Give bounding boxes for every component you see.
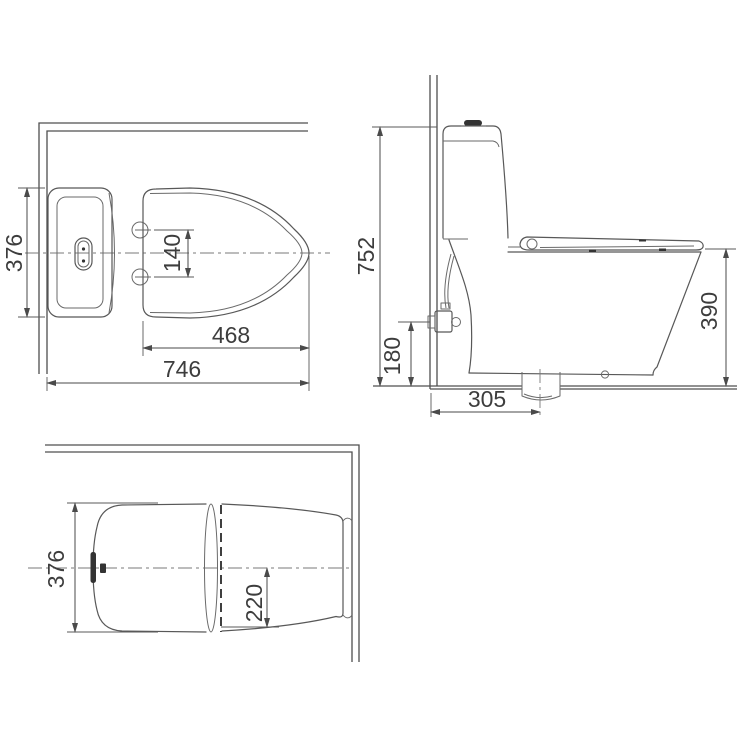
side-tank-lid-seam — [443, 141, 499, 147]
front-base-hook-top — [343, 518, 352, 521]
front-flush-button-nub — [100, 564, 106, 574]
side-body-front-curve — [449, 240, 472, 373]
dim-label-drain-setout: 305 — [468, 386, 506, 412]
drain-pipe-lip — [524, 394, 552, 398]
side-tank-outline — [443, 126, 508, 238]
lid-bumper-mark — [639, 240, 646, 242]
top-view: 376 140 468 746 — [1, 123, 330, 391]
dim-label-base-offset: 220 — [241, 584, 267, 622]
dim-label-seat-depth: 468 — [212, 322, 250, 348]
dim-label-bowl-height: 390 — [696, 292, 722, 330]
dim-label-hinge-spacing: 140 — [159, 234, 185, 272]
side-flush-button — [464, 120, 482, 126]
front-base-hook-bottom — [343, 615, 352, 618]
side-seat-hinge — [527, 239, 537, 249]
side-seat-lid — [520, 237, 703, 250]
dim-label-valve-height: 180 — [379, 337, 405, 375]
tank-outline — [48, 188, 112, 317]
seat-fixing-mark — [659, 249, 666, 252]
flush-button-dot-top — [82, 247, 85, 250]
flush-button-inner — [78, 241, 89, 267]
side-seat-underside-line — [540, 246, 694, 248]
dim-label-top-width: 376 — [1, 234, 27, 272]
front-view: 376 220 — [28, 445, 359, 662]
dim-label-total-depth: 746 — [163, 356, 201, 382]
toilet-dimension-drawing: 376 140 468 746 — [0, 0, 740, 740]
side-view: 752 180 390 305 — [353, 75, 737, 419]
front-flush-button — [91, 552, 97, 583]
tank-inner-edge — [57, 197, 103, 308]
dim-label-front-width: 376 — [43, 550, 69, 588]
side-body-bottom-edge — [469, 373, 653, 375]
dim-label-total-height: 752 — [353, 237, 379, 275]
technical-drawing-page: 376 140 468 746 — [0, 0, 740, 740]
stop-valve-knob — [452, 318, 461, 327]
side-bowl-front-slope — [653, 252, 701, 375]
flush-button-dot-bottom — [82, 259, 85, 262]
seat-fixing-mark — [589, 250, 596, 253]
